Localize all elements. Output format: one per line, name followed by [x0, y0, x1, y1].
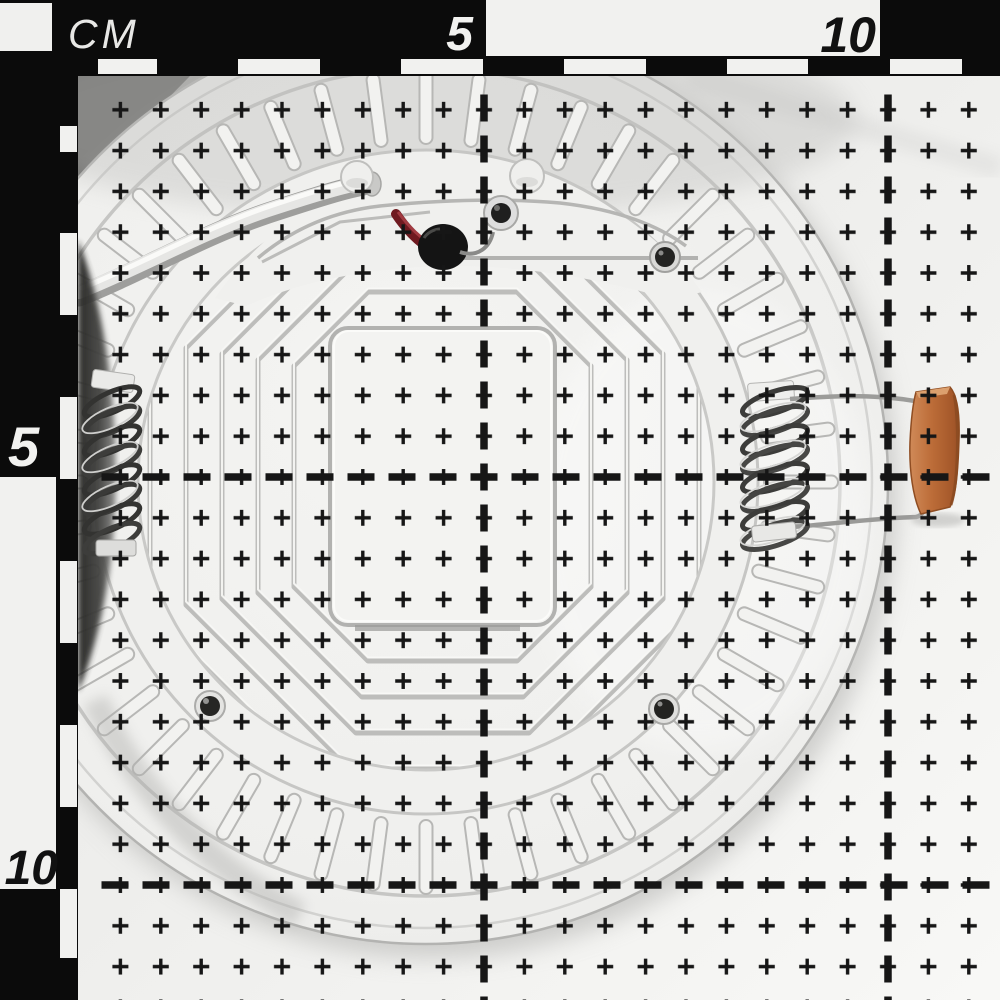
- ruler-top: CM 5 10: [0, 0, 1000, 76]
- ruler-top-label-5: 5: [446, 8, 474, 61]
- photo-frame: CM 5 10 5 10: [0, 0, 1000, 1000]
- cross-lattice: [90, 92, 1000, 1000]
- ruler-top-label-10: 10: [820, 7, 876, 63]
- ruler-left-white-block: [0, 477, 56, 889]
- photo-canvas: CM 5 10 5 10: [0, 0, 1000, 1000]
- measurement-grid: [90, 92, 1000, 1000]
- ruler-unit-label: CM: [68, 11, 140, 57]
- ruler-left-label-10: 10: [5, 842, 59, 895]
- ruler-left-label-5: 5: [8, 415, 40, 478]
- corner-white-chip: [0, 3, 52, 51]
- ruler-left: 5 10: [0, 56, 78, 1000]
